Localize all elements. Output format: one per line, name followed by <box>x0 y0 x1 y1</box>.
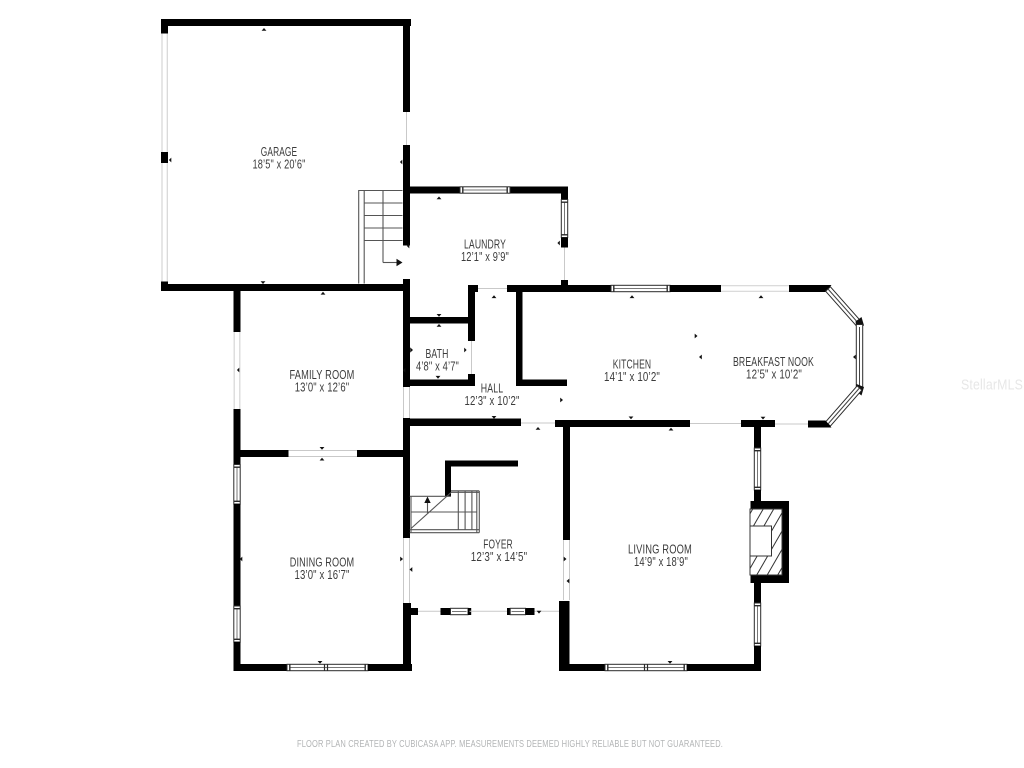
svg-text:14’9" x 18’9": 14’9" x 18’9" <box>634 555 688 569</box>
svg-text:FLOOR PLAN CREATED BY CUBICASA: FLOOR PLAN CREATED BY CUBICASA APP. MEAS… <box>297 739 723 750</box>
svg-text:13’0" x 16’7": 13’0" x 16’7" <box>295 568 350 582</box>
svg-text:12’3" x 10’2": 12’3" x 10’2" <box>465 394 520 408</box>
svg-text:14’1" x 10’2": 14’1" x 10’2" <box>604 370 660 384</box>
svg-text:18’5" x 20’6": 18’5" x 20’6" <box>253 158 306 172</box>
svg-text:StellarMLS: StellarMLS <box>961 377 1023 394</box>
svg-text:12’5" x 10’2": 12’5" x 10’2" <box>746 368 802 382</box>
svg-text:4’8" x 4’7": 4’8" x 4’7" <box>416 360 459 374</box>
svg-text:12’3" x 14’5": 12’3" x 14’5" <box>471 550 528 564</box>
svg-text:13’0" x 12’6": 13’0" x 12’6" <box>295 381 350 395</box>
svg-text:12’1" x 9’9": 12’1" x 9’9" <box>461 250 509 264</box>
